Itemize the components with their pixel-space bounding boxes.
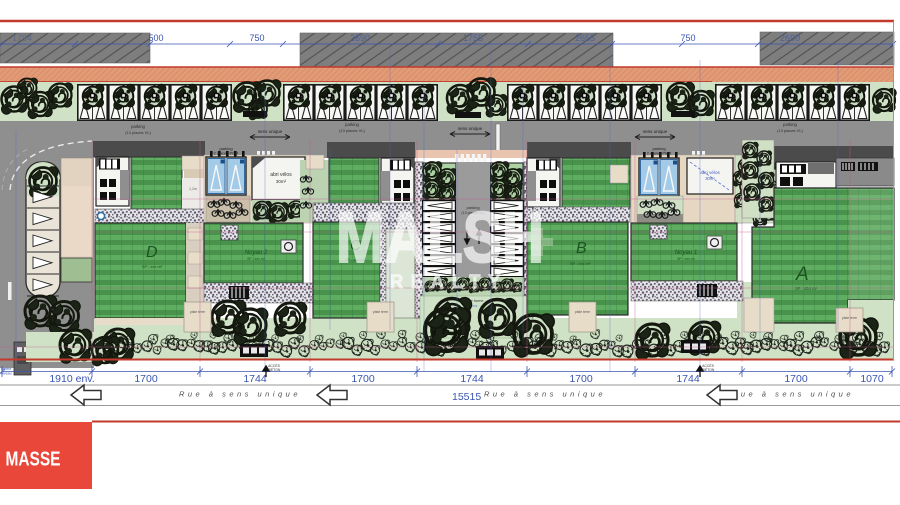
svg-text:piste terre: piste terre — [373, 310, 388, 314]
svg-text:1910 env.: 1910 env. — [49, 373, 94, 385]
svg-text:(13 places VL): (13 places VL) — [777, 128, 803, 133]
svg-text:sens unique: sens unique — [643, 129, 668, 134]
svg-text:750: 750 — [680, 33, 695, 43]
svg-text:30m²: 30m² — [705, 176, 715, 181]
svg-text:2690: 2690 — [350, 33, 370, 43]
svg-text:2.4 ares PMR: 2.4 ares PMR — [647, 151, 672, 156]
svg-text:MALSH: MALSH — [336, 199, 544, 278]
svg-text:(13 places VL): (13 places VL) — [125, 130, 151, 135]
svg-text:2655: 2655 — [575, 33, 595, 43]
svg-text:Rue à sens unique: Rue à sens unique — [484, 390, 606, 399]
svg-text:1700: 1700 — [569, 373, 593, 385]
svg-text:1744: 1744 — [676, 373, 700, 385]
svg-text:SP : xxx m²: SP : xxx m² — [247, 257, 266, 261]
svg-text:A: A — [795, 264, 809, 285]
svg-text:1070: 1070 — [860, 373, 884, 385]
svg-text:2 places PMR: 2 places PMR — [214, 151, 239, 156]
svg-text:1700: 1700 — [134, 373, 158, 385]
svg-text:1700: 1700 — [351, 373, 375, 385]
svg-text:1794: 1794 — [12, 33, 32, 43]
svg-text:1755: 1755 — [463, 33, 483, 43]
svg-text:SP : xxx m²: SP : xxx m² — [677, 257, 696, 261]
svg-text:SP : xxx m²: SP : xxx m² — [570, 261, 591, 266]
svg-text:1744: 1744 — [460, 373, 484, 385]
svg-text:Rue à sens unique: Rue à sens unique — [732, 390, 854, 399]
svg-text:PIÉTON: PIÉTON — [268, 367, 281, 372]
svg-text:500: 500 — [148, 33, 163, 43]
svg-text:REALTY: REALTY — [390, 272, 508, 293]
svg-text:750: 750 — [249, 33, 264, 43]
svg-text:sens unique: sens unique — [258, 129, 283, 134]
svg-text:Rue à sens unique: Rue à sens unique — [179, 390, 301, 399]
svg-text:SP : 454 m²: SP : 454 m² — [795, 286, 818, 291]
svg-text:2690: 2690 — [780, 33, 800, 43]
svg-text:30m²: 30m² — [276, 179, 287, 184]
svg-text:Noyau 1: Noyau 1 — [675, 250, 697, 256]
svg-text:MASSE: MASSE — [6, 449, 61, 471]
svg-text:(13 places VL): (13 places VL) — [339, 128, 365, 133]
svg-text:B: B — [576, 240, 587, 257]
svg-text:abri vélos: abri vélos — [270, 172, 292, 178]
svg-text:sens unique: sens unique — [458, 126, 483, 131]
svg-text:repère: repère — [1, 367, 11, 371]
svg-text:piste terre: piste terre — [190, 310, 205, 314]
svg-text:parking: parking — [345, 122, 359, 127]
svg-text:1700: 1700 — [784, 373, 808, 385]
svg-text:parking: parking — [131, 124, 145, 129]
svg-text:PIÉTON: PIÉTON — [702, 367, 715, 372]
svg-text:1,2m: 1,2m — [189, 187, 197, 191]
svg-text:piste terre: piste terre — [575, 310, 590, 314]
svg-text:1744: 1744 — [243, 373, 267, 385]
svg-text:niveau: niveau — [1, 372, 12, 376]
svg-text:abri vélos: abri vélos — [700, 170, 720, 175]
svg-text:D: D — [146, 244, 158, 261]
svg-text:piste terre: piste terre — [842, 316, 857, 320]
svg-text:15515: 15515 — [452, 391, 481, 403]
svg-text:Noyau 2: Noyau 2 — [245, 250, 268, 256]
svg-text:parking: parking — [783, 122, 797, 127]
svg-text:SP : xxx m²: SP : xxx m² — [142, 264, 163, 269]
